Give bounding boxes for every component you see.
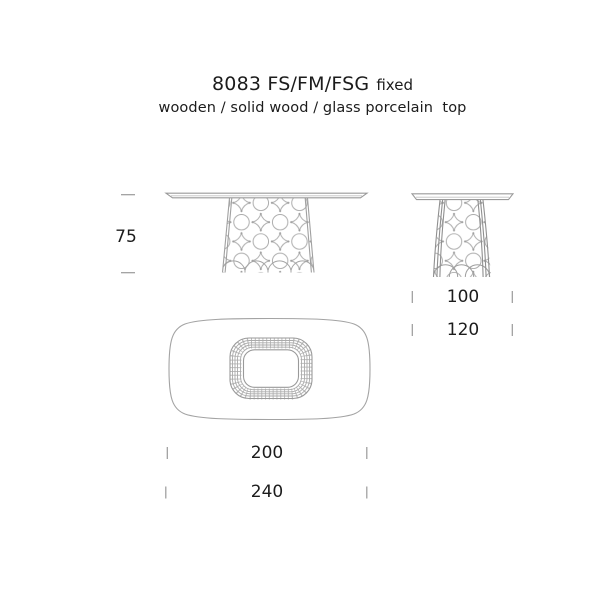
depth-dim-label-100: 100 <box>447 287 479 307</box>
top-view-tabletop-outline <box>169 319 370 420</box>
end-view-base <box>430 198 496 289</box>
technical-drawing <box>0 0 601 601</box>
length-dim-label-240: 240 <box>251 482 283 502</box>
height-dim-label: 75 <box>115 227 137 247</box>
spec-sheet-page: 8083 FS/FM/FSGfixed wooden / solid wood … <box>0 0 601 601</box>
top-view <box>169 319 370 420</box>
end-view-tabletop <box>412 194 513 200</box>
depth-dim-label-120: 120 <box>447 320 479 340</box>
length-dim-label-200: 200 <box>251 443 283 463</box>
side-view-tabletop <box>166 193 367 198</box>
end-view <box>412 194 513 289</box>
top-view-base-ring <box>230 338 312 399</box>
side-view-base <box>220 196 320 284</box>
side-view <box>166 193 367 284</box>
